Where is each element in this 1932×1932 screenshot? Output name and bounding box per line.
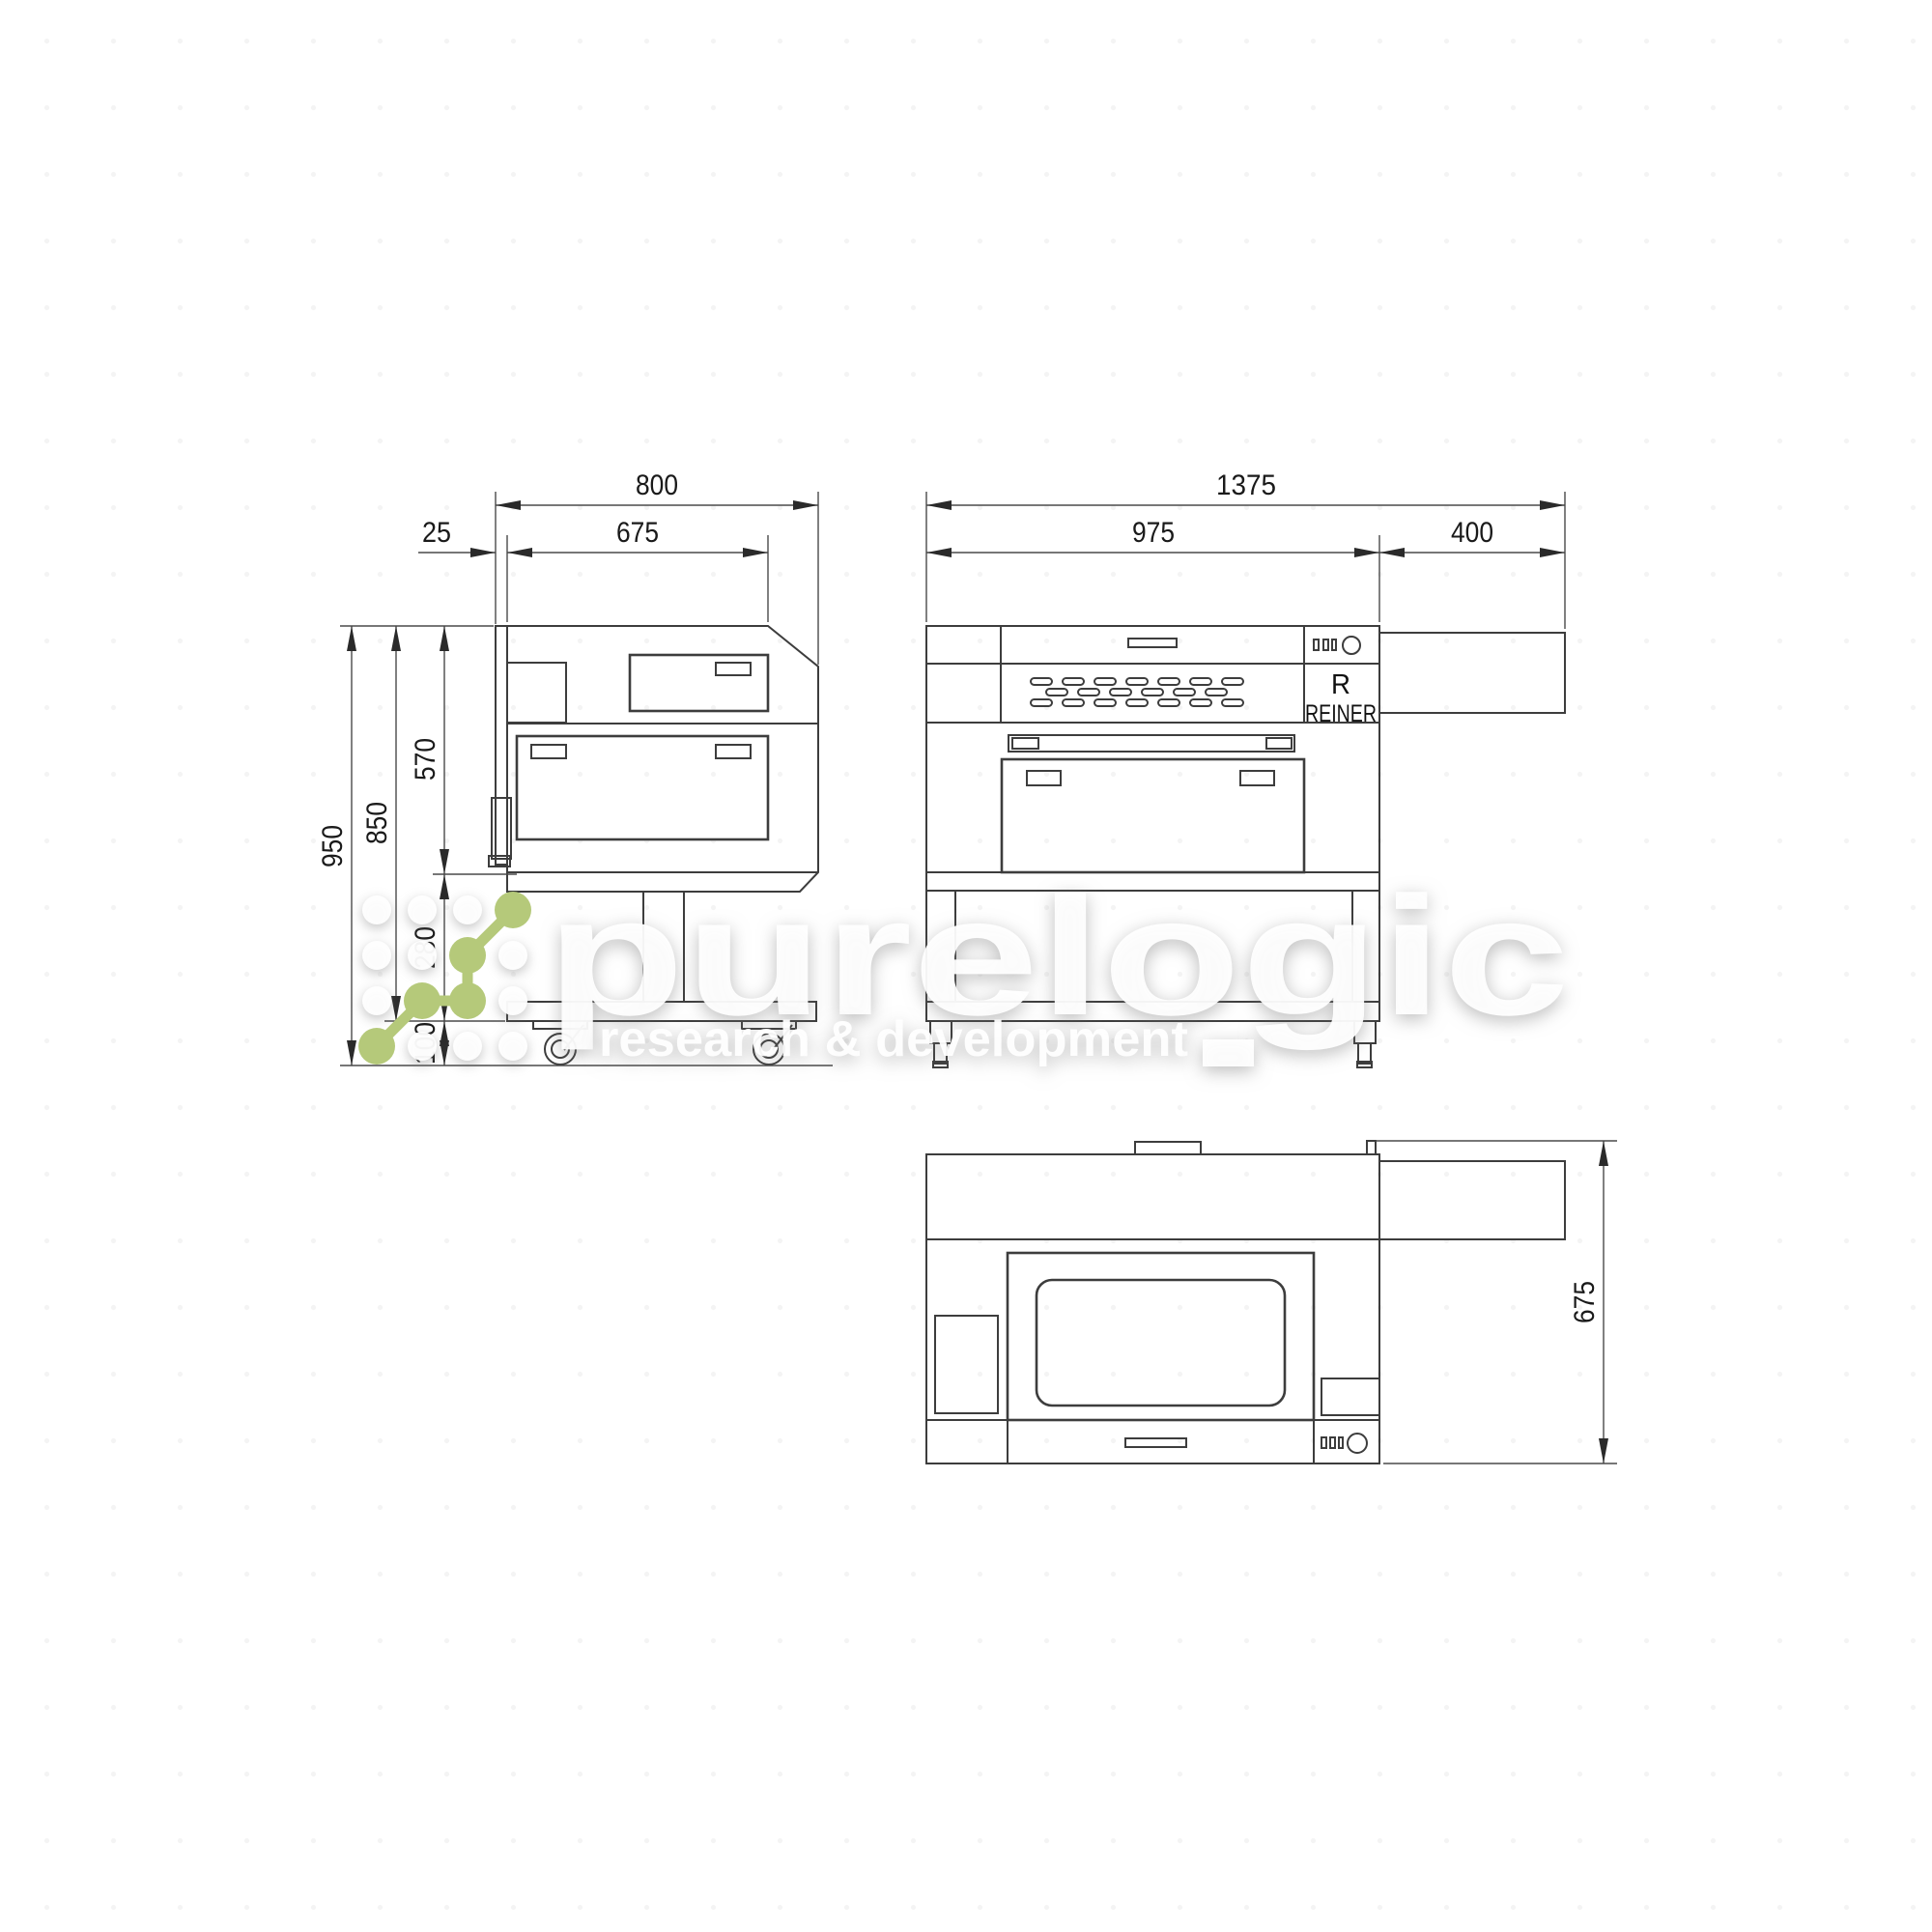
top-view	[926, 1141, 1565, 1463]
side-top-left-box	[507, 663, 566, 723]
front-rail-cap-left	[1012, 738, 1038, 749]
watermark: purelogic research & development	[358, 863, 1570, 1067]
front-vent-grille	[1031, 678, 1243, 706]
front-indicator-1	[1314, 639, 1319, 650]
front-indicator-3	[1332, 639, 1336, 650]
top-lid	[1008, 1253, 1314, 1420]
dim-front-tube-cover-width: 400	[1451, 517, 1493, 549]
top-front-handle	[1125, 1438, 1186, 1447]
laser-machine-dimension-drawing: R REINER	[0, 0, 1932, 1932]
dim-side-overall-height: 950	[317, 825, 349, 867]
side-door-hinge-right	[716, 745, 751, 758]
front-door-hinge-left	[1027, 771, 1061, 785]
top-power-button	[1348, 1434, 1367, 1453]
top-control-panel	[1321, 1434, 1367, 1453]
top-left-port	[935, 1316, 998, 1413]
top-right-box	[1321, 1378, 1379, 1415]
dim-side-body-height: 570	[410, 738, 441, 781]
top-tube-cover	[1379, 1161, 1565, 1239]
dim-front-body-width: 975	[1132, 517, 1175, 549]
top-indicator-1	[1321, 1437, 1326, 1448]
front-rail	[1009, 735, 1294, 752]
dim-side-overall-width: 800	[636, 469, 678, 501]
side-upper-window-latch	[716, 663, 751, 675]
front-tube-cover	[1379, 633, 1565, 713]
top-indicator-2	[1330, 1437, 1335, 1448]
front-door	[1002, 759, 1304, 872]
dim-top-depth: 675	[1569, 1281, 1601, 1323]
top-lid-window	[1037, 1280, 1285, 1406]
front-control-panel	[1314, 637, 1360, 654]
top-corner-tab	[1367, 1141, 1376, 1154]
front-door-hinge-right	[1240, 771, 1274, 785]
top-body-outline	[926, 1154, 1379, 1463]
watermark-square	[1203, 1039, 1254, 1066]
front-brand: R REINER	[1305, 669, 1377, 727]
top-exhaust-tab	[1135, 1142, 1201, 1154]
dim-side-rear-offset: 25	[422, 517, 451, 549]
brand-initial: R	[1331, 669, 1350, 700]
dim-front-overall-width: 1375	[1216, 469, 1276, 501]
drawing-canvas: R REINER	[0, 0, 1932, 1932]
dim-side-body-width: 675	[616, 517, 659, 549]
brand-name: REINER	[1305, 700, 1377, 727]
front-top-handle	[1128, 639, 1177, 647]
watermark-tagline: research & development	[599, 1011, 1188, 1067]
top-indicator-3	[1339, 1437, 1343, 1448]
front-power-button	[1343, 637, 1360, 654]
front-rail-cap-right	[1266, 738, 1292, 749]
front-indicator-2	[1323, 639, 1328, 650]
top-front-strip-dividers	[1008, 1420, 1314, 1463]
side-door	[517, 736, 768, 839]
side-door-hinge-left	[531, 745, 566, 758]
side-rear-panel	[496, 626, 507, 865]
dim-side-height-to-casters: 850	[361, 802, 393, 844]
